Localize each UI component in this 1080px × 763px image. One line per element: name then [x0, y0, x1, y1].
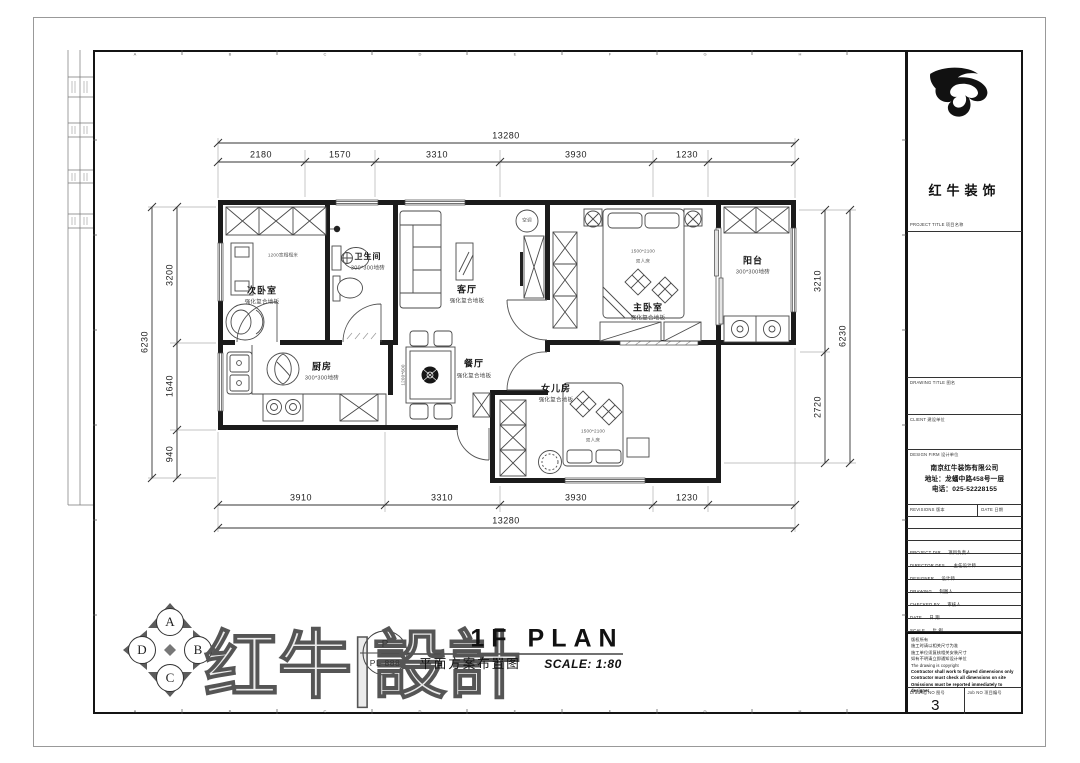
dim-right-1: 3210 — [814, 270, 823, 292]
grid-letter: A — [134, 52, 137, 57]
dim-right-total: 6230 — [839, 325, 848, 347]
dim-top-2: 1570 — [329, 151, 351, 160]
tb-notes: 版权所有 施工时请以相关尺寸为准 施工单位须复核相关安装尺寸 如有不明请立即通知… — [907, 632, 1022, 688]
sofa — [400, 211, 441, 308]
tb-row-designer: DESIGNER 设计师 — [907, 567, 1022, 580]
stove — [263, 394, 303, 421]
tb-project-title-area — [907, 232, 1022, 378]
tb-design-firm-area: DESIGN FIRM 设计单位 南京红牛装饰有限公司 地址：龙蟠中路458号一… — [907, 450, 1022, 505]
bull-logo — [921, 66, 1013, 124]
tb-drawing-title-area: DRAWING TITLE 图名 — [907, 378, 1022, 415]
dim-left-2: 1640 — [166, 375, 175, 397]
tb-revisions-label: REVISIONS 版本 — [907, 505, 977, 514]
grid-letter: B — [229, 709, 232, 714]
tb-row-project-dir: PROJECT DIR 项目负责人 — [907, 541, 1022, 554]
room-label-master: 主卧室 — [633, 304, 663, 313]
grid-letter: C — [324, 709, 327, 714]
tb-number-row: Drawing NO 图号 3 Job NO 项目编号 — [907, 688, 1022, 714]
dim-top-5: 1230 — [676, 151, 698, 160]
master-bed-type: 双人床 — [636, 260, 650, 265]
margin-strip — [68, 50, 93, 505]
tb-drawing-no-label: Drawing NO 图号 — [907, 688, 964, 697]
room-floor-girl: 强化复合地板 — [539, 398, 574, 404]
tb-logo-section: 红牛装饰 PROJECT TITLE 项目名称 — [907, 50, 1022, 232]
dim-total-bottom: 13280 — [492, 517, 520, 526]
dim-bottom-1: 3910 — [290, 494, 312, 503]
tb-row-date: DATE 日 期 — [907, 606, 1022, 619]
dim-top-4: 3930 — [565, 151, 587, 160]
dim-bottom-2: 3310 — [431, 494, 453, 503]
grid-letter: E — [514, 709, 517, 714]
dining-set — [406, 331, 455, 419]
dim-total-top: 13280 — [492, 132, 520, 141]
living-cabinet — [520, 236, 544, 298]
room-floor-second-bedroom: 强化复合地板 — [245, 300, 280, 306]
dim-left-total: 6230 — [141, 331, 150, 353]
grid-letter: A — [134, 709, 137, 714]
compass-c: C — [166, 670, 175, 686]
tb-project-title-label: PROJECT TITLE 项目名称 — [907, 220, 966, 229]
dim-bottom-4: 1230 — [676, 494, 698, 503]
wardrobe-second-bedroom — [226, 207, 326, 235]
shaft — [473, 393, 490, 417]
kitchen-cabinet — [340, 394, 378, 421]
dining-table-size: 1200*600 — [402, 364, 407, 385]
master-low-cabinets — [600, 322, 701, 341]
grid-letter: F — [609, 709, 611, 714]
tb-client-label: CLIENT 建设单位 — [907, 415, 1022, 424]
balcony-cabinets — [724, 207, 789, 233]
room-label-balcony: 阳台 — [743, 257, 763, 266]
wardrobe-girl — [500, 400, 526, 476]
tb-design-firm-label: DESIGN FIRM 设计单位 — [907, 450, 1022, 459]
room-floor-kitchen: 300*300地砖 — [305, 376, 339, 382]
grid-letter: B — [229, 52, 232, 57]
grid-letter: G — [703, 709, 706, 714]
ac-label: 空调 — [522, 219, 532, 224]
grid-ticks — [93, 50, 906, 714]
stamp-letter: P — [382, 640, 389, 650]
armchair — [226, 304, 264, 340]
tv-panel — [456, 243, 473, 280]
tatami-note: 1200宽榻榻米 — [268, 254, 298, 259]
grid-letter: C — [324, 52, 327, 57]
drawing-sheet: A B C D E F G H A B C D E F G H 13280 21… — [0, 0, 1080, 763]
tb-row-scale: SCALE 比 例 — [907, 619, 1022, 632]
grid-letter: G — [703, 52, 706, 57]
grid-letter: F — [609, 52, 611, 57]
room-floor-dining: 强化复合地板 — [457, 374, 492, 380]
grid-letter: E — [514, 52, 517, 57]
dim-bottom-3: 3930 — [565, 494, 587, 503]
grid-letter: D — [419, 52, 422, 57]
wardrobe-master — [553, 232, 577, 328]
compass-b: B — [194, 642, 203, 658]
kitchen-sink — [227, 352, 252, 394]
room-floor-balcony: 300*300地砖 — [736, 270, 770, 276]
dim-left-1: 3200 — [166, 264, 175, 286]
tb-row-director: DIRECTOR DES. 主任设计师 — [907, 554, 1022, 567]
dim-left-3: 940 — [166, 446, 175, 463]
grid-letter: H — [799, 709, 802, 714]
stamp-number: PL-888 — [370, 659, 400, 668]
room-label-second-bedroom: 次卧室 — [247, 287, 277, 296]
title-block: 红牛装饰 PROJECT TITLE 项目名称 DRAWING TITLE 图名… — [907, 50, 1022, 714]
tb-brand: 红牛装饰 — [907, 180, 1022, 199]
room-label-bathroom: 卫生间 — [355, 253, 382, 261]
grid-letter: H — [799, 52, 802, 57]
master-bed-size: 1500*2100 — [631, 250, 655, 255]
room-label-dining: 餐厅 — [464, 360, 484, 369]
dim-top-3: 3310 — [426, 151, 448, 160]
room-floor-master: 强化复合地板 — [631, 316, 666, 322]
tb-job-no-label: Job NO 项目编号 — [965, 688, 1023, 697]
grid-letter: D — [419, 709, 422, 714]
dim-right-2: 2720 — [814, 396, 823, 418]
room-label-kitchen: 厨房 — [312, 363, 332, 372]
dim-top-1: 2180 — [250, 151, 272, 160]
tb-row-checked: CHECKED BY 审核人 — [907, 593, 1022, 606]
room-floor-bathroom: 300*300地砖 — [351, 266, 385, 272]
tb-drawing-no: 3 — [907, 697, 964, 714]
drawing-title-en: 1F PLAN — [470, 627, 623, 652]
drawing-title-cn: 平面方案布置图 — [419, 658, 521, 671]
girl-bed-size: 1500*2100 — [581, 430, 605, 435]
drawing-scale: SCALE: 1:80 — [544, 658, 622, 670]
kitchen-decor — [267, 353, 299, 385]
tb-note-bold: Contractor must check all dimensions on … — [911, 675, 1018, 681]
tb-revisions: REVISIONS 版本 DATE 日期 — [907, 505, 1022, 541]
tb-client-area: CLIENT 建设单位 — [907, 415, 1022, 450]
girl-bed — [563, 383, 623, 466]
tb-row-drawing: DRAWING 制图人 — [907, 580, 1022, 593]
washing-machines — [724, 316, 789, 342]
compass-d: D — [137, 642, 146, 658]
tb-company: 南京红牛装饰有限公司 — [907, 464, 1022, 475]
compass-a: A — [165, 614, 174, 630]
room-floor-living: 强化复合地板 — [450, 299, 485, 305]
tb-address: 地址：龙蟠中路458号一层 — [907, 475, 1022, 486]
girl-bed-type: 双人床 — [586, 439, 600, 444]
room-label-girl: 女儿房 — [541, 385, 571, 394]
room-label-living: 客厅 — [457, 286, 477, 295]
tb-phone: 电话：025-52228155 — [907, 485, 1022, 496]
tb-drawing-title-label: DRAWING TITLE 图名 — [907, 378, 1022, 387]
tb-date-col-label: DATE 日期 — [978, 505, 1022, 514]
